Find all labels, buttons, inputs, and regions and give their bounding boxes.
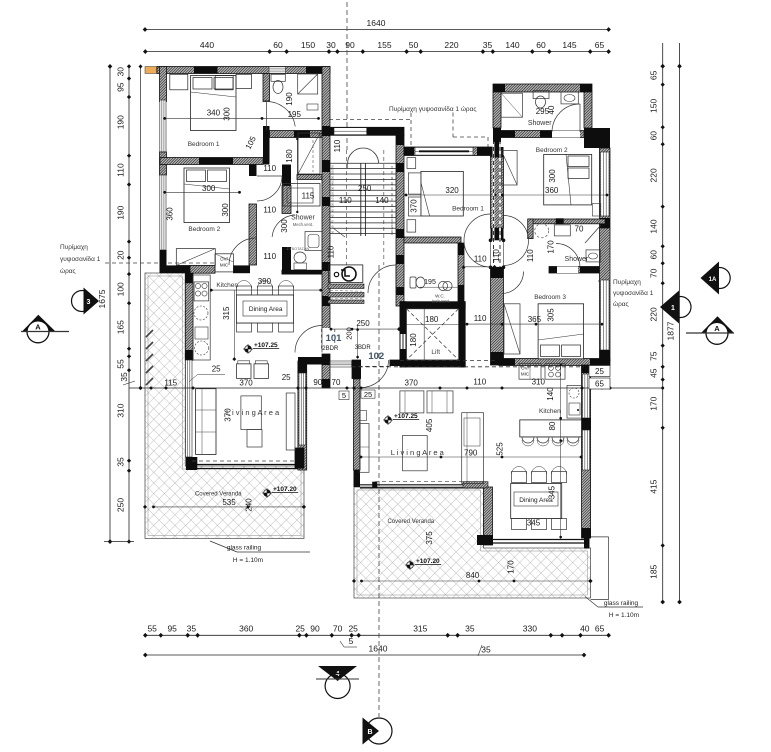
svg-text:250: 250 (116, 498, 126, 512)
svg-text:250: 250 (356, 319, 370, 328)
svg-text:315: 315 (222, 306, 231, 320)
svg-text:glass railing: glass railing (604, 600, 639, 607)
svg-text:365: 365 (528, 315, 542, 324)
svg-text:150: 150 (331, 176, 335, 181)
svg-text:Shower: Shower (291, 215, 315, 222)
svg-text:155: 155 (377, 40, 391, 50)
svg-text:110: 110 (474, 254, 487, 263)
svg-text:+107.25: +107.25 (394, 413, 418, 420)
svg-text:300: 300 (221, 203, 230, 217)
svg-text:100: 100 (390, 213, 394, 218)
svg-text:1640: 1640 (367, 18, 386, 28)
svg-text:L i v i n g A r e a: L i v i n g A r e a (391, 448, 445, 457)
svg-text:55: 55 (116, 359, 126, 369)
svg-text:30: 30 (390, 176, 394, 180)
svg-text:120: 120 (390, 224, 394, 229)
svg-text:345: 345 (547, 485, 556, 499)
svg-text:60: 60 (273, 40, 283, 50)
svg-text:130: 130 (390, 230, 394, 235)
svg-text:1877: 1877 (666, 321, 676, 340)
svg-text:110: 110 (263, 252, 276, 261)
svg-text:70: 70 (390, 198, 394, 202)
svg-text:H = 1.10m: H = 1.10m (233, 557, 263, 564)
svg-text:390: 390 (258, 277, 272, 286)
svg-text:220: 220 (444, 40, 458, 50)
svg-text:180: 180 (425, 315, 439, 324)
svg-text:140: 140 (649, 219, 659, 233)
svg-text:Bedroom 2: Bedroom 2 (188, 226, 220, 233)
svg-text:240: 240 (244, 498, 253, 512)
svg-text:A: A (35, 323, 41, 332)
svg-text:B: B (367, 729, 372, 736)
svg-text:80: 80 (390, 203, 394, 207)
svg-text:Lift: Lift (431, 349, 440, 356)
svg-text:25: 25 (212, 365, 221, 374)
svg-text:ώρας: ώρας (60, 267, 76, 275)
svg-text:tech.vent.: tech.vent. (432, 299, 450, 304)
svg-text:1675: 1675 (97, 289, 107, 308)
svg-text:MIC: MIC (220, 263, 229, 268)
svg-text:35: 35 (483, 40, 493, 50)
svg-text:370: 370 (410, 199, 419, 213)
svg-text:130: 130 (331, 186, 335, 191)
svg-text:80: 80 (548, 421, 557, 430)
svg-text:360: 360 (239, 624, 253, 634)
svg-text:170: 170 (507, 560, 516, 574)
svg-text:MIC: MIC (521, 372, 530, 377)
svg-text:20: 20 (390, 171, 394, 175)
svg-text:glass railing: glass railing (227, 545, 262, 552)
svg-text:70: 70 (333, 624, 343, 634)
svg-text:ΣΥΒΟΤΑΣΑΝ: ΣΥΒΟΤΑΣΑΝ (287, 247, 310, 251)
svg-text:370: 370 (239, 378, 253, 387)
svg-text:415: 415 (649, 479, 659, 493)
svg-text:110: 110 (326, 245, 335, 258)
svg-text:150: 150 (649, 99, 659, 113)
svg-text:Bedroom 1: Bedroom 1 (452, 206, 484, 213)
svg-text:70: 70 (649, 268, 659, 278)
svg-text:200: 200 (344, 327, 353, 340)
svg-text:110: 110 (263, 164, 276, 173)
svg-text:25: 25 (295, 624, 305, 634)
svg-text:370: 370 (224, 408, 233, 422)
svg-text:Πυρίμαχη γυψοσανίδα 1 ώρας: Πυρίμαχη γυψοσανίδα 1 ώρας (389, 105, 477, 113)
svg-text:525: 525 (496, 442, 505, 456)
svg-text:300: 300 (548, 169, 557, 183)
svg-text:120: 120 (331, 192, 335, 197)
svg-text:1A: 1A (709, 277, 717, 283)
svg-text:10: 10 (390, 166, 394, 170)
svg-text:35: 35 (116, 457, 126, 467)
svg-text:300: 300 (202, 184, 216, 193)
svg-text:190: 190 (285, 92, 294, 106)
svg-text:370: 370 (405, 378, 419, 387)
svg-text:345: 345 (527, 518, 541, 527)
svg-text:1640: 1640 (369, 644, 388, 654)
svg-text:60: 60 (649, 131, 659, 141)
svg-text:101: 101 (326, 333, 343, 344)
svg-text:25: 25 (595, 367, 604, 376)
svg-text:90: 90 (331, 209, 335, 213)
svg-text:OV/: OV/ (220, 257, 229, 262)
svg-text:+107.20: +107.20 (273, 486, 297, 493)
svg-text:+107.20: +107.20 (416, 558, 440, 565)
svg-text:Bedroom 1: Bedroom 1 (188, 141, 220, 148)
svg-text:Kitchen: Kitchen (216, 282, 238, 289)
svg-text:Πυρίμαχη: Πυρίμαχη (613, 278, 641, 286)
svg-text:300: 300 (280, 219, 289, 233)
svg-text:90: 90 (310, 624, 320, 634)
svg-text:65: 65 (649, 70, 659, 80)
svg-text:100: 100 (116, 282, 126, 296)
svg-text:360: 360 (545, 186, 559, 195)
svg-text:45: 45 (649, 368, 659, 378)
svg-text:Covered Veranda: Covered Veranda (387, 519, 434, 525)
svg-text:180: 180 (409, 333, 418, 347)
svg-text:+107.25: +107.25 (254, 342, 278, 349)
svg-text:110: 110 (473, 378, 486, 387)
svg-text:185: 185 (649, 564, 659, 578)
svg-text:γυψοσανίδα 1: γυψοσανίδα 1 (613, 289, 654, 297)
svg-text:190: 190 (116, 115, 126, 129)
svg-text:35: 35 (119, 372, 129, 382)
svg-text:70: 70 (332, 378, 341, 387)
svg-text:3: 3 (87, 299, 91, 306)
svg-text:25: 25 (282, 373, 291, 382)
svg-text:60: 60 (390, 193, 394, 197)
svg-text:170: 170 (547, 240, 556, 254)
svg-text:5: 5 (342, 391, 346, 400)
svg-text:250: 250 (358, 184, 372, 193)
svg-text:70: 70 (331, 220, 335, 224)
svg-text:95: 95 (167, 624, 177, 634)
svg-text:30: 30 (326, 40, 336, 50)
svg-text:140: 140 (546, 387, 555, 401)
svg-text:360: 360 (165, 207, 174, 221)
svg-text:Dining Area: Dining Area (249, 306, 283, 313)
svg-text:310: 310 (532, 378, 546, 387)
svg-text:1: 1 (671, 305, 675, 312)
svg-text:310: 310 (116, 403, 126, 417)
svg-text:50: 50 (390, 187, 394, 191)
svg-text:4: 4 (336, 671, 340, 678)
svg-text:ώρας: ώρας (613, 300, 629, 308)
svg-text:Bedroom 2: Bedroom 2 (536, 147, 568, 154)
svg-text:L i v i n g A r e a: L i v i n g A r e a (226, 408, 280, 417)
svg-text:50: 50 (409, 40, 419, 50)
svg-text:25: 25 (364, 390, 372, 399)
svg-text:H = 1.10m: H = 1.10m (609, 612, 639, 619)
svg-text:40: 40 (580, 624, 590, 634)
svg-text:535: 535 (222, 498, 236, 507)
svg-text:Shower: Shower (528, 120, 552, 127)
svg-text:80: 80 (331, 214, 335, 218)
svg-text:165: 165 (116, 320, 126, 334)
svg-text:35: 35 (481, 645, 491, 655)
svg-text:40: 40 (390, 182, 394, 186)
svg-text:70: 70 (575, 225, 584, 234)
svg-text:140: 140 (331, 181, 335, 186)
svg-text:170: 170 (649, 396, 659, 410)
svg-text:140: 140 (375, 196, 389, 205)
svg-text:35: 35 (465, 624, 475, 634)
svg-text:110: 110 (331, 197, 335, 202)
svg-text:35: 35 (187, 624, 197, 634)
svg-text:Shower: Shower (565, 256, 589, 263)
svg-text:100: 100 (331, 203, 335, 208)
svg-text:110: 110 (339, 196, 352, 205)
svg-text:90: 90 (390, 209, 394, 213)
svg-text:110: 110 (116, 163, 126, 177)
svg-text:220: 220 (649, 168, 659, 182)
svg-text:Covered Veranda: Covered Veranda (195, 492, 242, 498)
svg-text:160: 160 (331, 170, 335, 175)
svg-text:A: A (714, 324, 720, 333)
svg-text:5: 5 (349, 636, 354, 646)
svg-text:375: 375 (425, 531, 434, 545)
svg-text:110: 110 (333, 139, 342, 152)
svg-text:110: 110 (263, 206, 276, 215)
svg-text:115: 115 (164, 378, 177, 387)
svg-text:Mech.vent.: Mech.vent. (293, 222, 313, 227)
svg-text:55: 55 (147, 624, 157, 634)
svg-text:γυψοσανίδα 1: γυψοσανίδα 1 (60, 255, 101, 263)
svg-text:405: 405 (425, 418, 434, 432)
svg-text:840: 840 (466, 571, 480, 580)
svg-text:170: 170 (331, 165, 335, 170)
svg-text:75: 75 (649, 351, 659, 361)
svg-text:110: 110 (526, 249, 535, 262)
svg-text:110: 110 (474, 314, 487, 323)
svg-text:315: 315 (413, 624, 427, 634)
svg-text:20: 20 (116, 250, 126, 260)
svg-text:145: 145 (562, 40, 576, 50)
svg-text:50: 50 (331, 231, 335, 235)
svg-text:110: 110 (390, 219, 394, 224)
svg-text:Πυρίμαχη: Πυρίμαχη (60, 243, 88, 251)
svg-text:115: 115 (302, 192, 315, 201)
svg-text:305: 305 (547, 308, 556, 322)
svg-text:330: 330 (523, 624, 537, 634)
svg-text:40: 40 (547, 105, 556, 114)
svg-text:320: 320 (445, 186, 459, 195)
svg-text:Kitchen: Kitchen (539, 408, 561, 415)
svg-text:60: 60 (649, 250, 659, 260)
svg-text:95: 95 (116, 82, 126, 92)
svg-text:65: 65 (595, 40, 605, 50)
svg-text:65: 65 (595, 624, 605, 634)
svg-text:102: 102 (368, 351, 384, 362)
svg-text:Bedroom 3: Bedroom 3 (534, 294, 566, 301)
svg-text:190: 190 (116, 205, 126, 219)
svg-text:195: 195 (288, 110, 302, 119)
svg-text:220: 220 (649, 307, 659, 321)
svg-text:340: 340 (207, 109, 221, 118)
svg-text:300: 300 (223, 107, 232, 121)
svg-text:180: 180 (285, 149, 294, 163)
svg-text:25: 25 (348, 624, 358, 634)
svg-text:30: 30 (116, 67, 126, 77)
svg-text:60: 60 (331, 225, 335, 229)
svg-text:OV/: OV/ (521, 366, 530, 371)
svg-text:60: 60 (536, 40, 546, 50)
svg-text:195: 195 (424, 279, 436, 286)
svg-text:110: 110 (492, 249, 501, 262)
svg-text:150: 150 (301, 40, 315, 50)
svg-text:90: 90 (313, 378, 322, 387)
svg-text:440: 440 (200, 40, 214, 50)
svg-text:2BDR: 2BDR (322, 346, 339, 352)
svg-text:65: 65 (595, 380, 604, 389)
svg-text:140: 140 (505, 40, 519, 50)
svg-text:790: 790 (464, 449, 478, 458)
